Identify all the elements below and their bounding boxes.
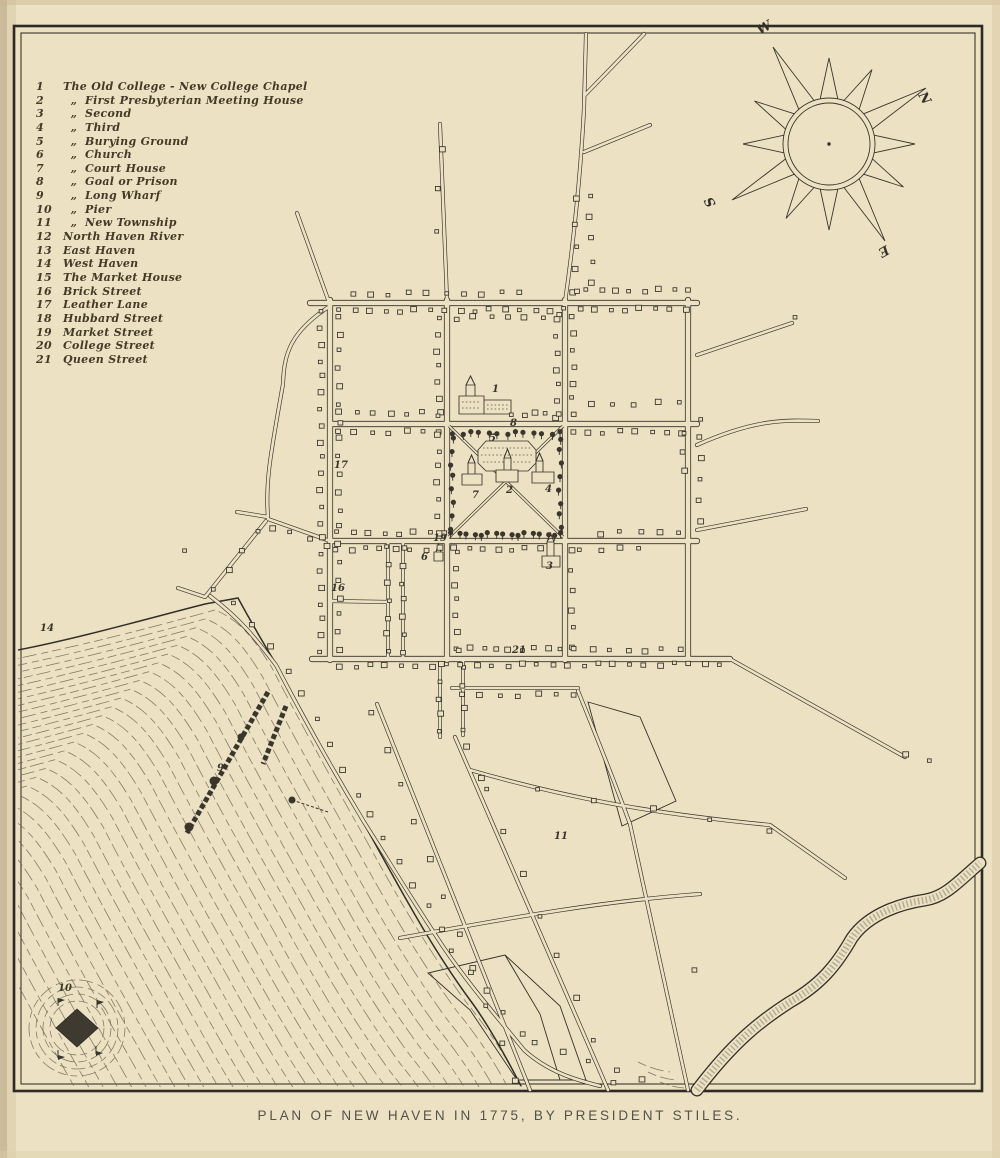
legend-item: 20College Street — [36, 339, 336, 353]
ditto-mark: „ — [63, 203, 85, 216]
page-edge-shadow — [0, 0, 1000, 5]
legend-item-number: 19 — [36, 326, 63, 339]
map-number-label: 6 — [421, 552, 428, 563]
legend: 1The Old College - New College Chapel2„F… — [36, 80, 336, 366]
legend-item-number: 5 — [36, 135, 63, 148]
legend-item: 7„Court House — [36, 162, 336, 176]
page-edge-shadow — [0, 1151, 1000, 1158]
legend-item-label: The Market House — [63, 271, 182, 284]
legend-item: 21Queen Street — [36, 353, 336, 367]
legend-item: 13East Haven — [36, 244, 336, 258]
legend-item-number: 11 — [36, 216, 63, 229]
legend-item-number: 7 — [36, 162, 63, 175]
legend-item-label: New Township — [85, 216, 177, 229]
ditto-mark: „ — [63, 162, 85, 175]
legend-item-number: 18 — [36, 312, 63, 325]
ditto-mark: „ — [63, 94, 85, 107]
map-number-label: 19 — [433, 533, 447, 544]
legend-item-number: 21 — [36, 353, 63, 366]
page-edge-shadow — [0, 0, 7, 1158]
legend-item-label: West Haven — [63, 257, 138, 270]
map-number-label: 7 — [472, 490, 479, 501]
map-number-label: 8 — [510, 418, 517, 429]
caption: PLAN OF NEW HAVEN IN 1775, BY PRESIDENT … — [0, 1108, 1000, 1123]
legend-item-number: 4 — [36, 121, 63, 134]
legend-item: 10„Pier — [36, 203, 336, 217]
legend-item: 6„Church — [36, 148, 336, 162]
map-number-label: 11 — [554, 831, 568, 842]
legend-item: 9„Long Wharf — [36, 189, 336, 203]
legend-item: 12North Haven River — [36, 230, 336, 244]
ditto-mark: „ — [63, 175, 85, 188]
legend-item-label: The Old College - New College Chapel — [63, 80, 308, 93]
scanned-page: N E S W 12345678910111416171921 1The Old… — [0, 0, 1000, 1158]
map-number-label: 21 — [511, 645, 526, 656]
legend-item: 19Market Street — [36, 326, 336, 340]
legend-item: 5„Burying Ground — [36, 135, 336, 149]
legend-item-label: Goal or Prison — [85, 175, 178, 188]
legend-item: 11„New Township — [36, 216, 336, 230]
legend-item: 18Hubbard Street — [36, 312, 336, 326]
legend-item-number: 15 — [36, 271, 63, 284]
legend-item-number: 14 — [36, 257, 63, 270]
map-number-label: 14 — [40, 623, 54, 634]
legend-item: 1The Old College - New College Chapel — [36, 80, 336, 94]
map-number-label: 10 — [58, 983, 72, 994]
ditto-mark: „ — [63, 135, 85, 148]
legend-item-number: 13 — [36, 244, 63, 257]
legend-item-number: 20 — [36, 339, 63, 352]
legend-item: 14West Haven — [36, 257, 336, 271]
legend-item-label: Third — [85, 121, 120, 134]
legend-item-label: First Presbyterian Meeting House — [85, 94, 304, 107]
legend-item-number: 8 — [36, 175, 63, 188]
legend-item: 4„Third — [36, 121, 336, 135]
map-number-label: 16 — [331, 583, 345, 594]
map-number-label: 17 — [334, 460, 348, 471]
ditto-mark: „ — [63, 107, 85, 120]
legend-item-label: Queen Street — [63, 353, 148, 366]
legend-item: 17Leather Lane — [36, 298, 336, 312]
legend-item-label: Market Street — [63, 326, 153, 339]
map-number-label: 1 — [492, 384, 499, 395]
legend-item: 8„Goal or Prison — [36, 175, 336, 189]
legend-item: 16Brick Street — [36, 285, 336, 299]
legend-item-number: 3 — [36, 107, 63, 120]
legend-item-label: Leather Lane — [63, 298, 148, 311]
legend-item-label: Brick Street — [63, 285, 142, 298]
legend-item-label: Second — [85, 107, 131, 120]
legend-item-number: 9 — [36, 189, 63, 202]
legend-item-label: Church — [85, 148, 132, 161]
legend-item-label: Burying Ground — [85, 135, 189, 148]
legend-item-label: Pier — [85, 203, 111, 216]
map-number-label: 5 — [489, 433, 496, 444]
legend-item-label: Long Wharf — [85, 189, 161, 202]
legend-item-number: 17 — [36, 298, 63, 311]
ditto-mark: „ — [63, 148, 85, 161]
map-number-label: 9 — [217, 763, 224, 774]
legend-item-number: 6 — [36, 148, 63, 161]
legend-item-label: Court House — [85, 162, 166, 175]
map-number-label: 2 — [505, 485, 513, 496]
legend-item-label: College Street — [63, 339, 155, 352]
legend-item-number: 2 — [36, 94, 63, 107]
legend-item-label: Hubbard Street — [63, 312, 163, 325]
legend-item-label: East Haven — [63, 244, 136, 257]
legend-item-number: 16 — [36, 285, 63, 298]
ditto-mark: „ — [63, 189, 85, 202]
map-number-label: 3 — [546, 561, 553, 572]
ditto-mark: „ — [63, 121, 85, 134]
legend-item-number: 1 — [36, 80, 63, 93]
legend-item-number: 12 — [36, 230, 63, 243]
legend-item: 3„Second — [36, 107, 336, 121]
page-edge-shadow — [992, 0, 1000, 1158]
map-number-label: 4 — [545, 484, 552, 495]
legend-item: 2„First Presbyterian Meeting House — [36, 94, 336, 108]
legend-item-label: North Haven River — [63, 230, 183, 243]
legend-item: 15The Market House — [36, 271, 336, 285]
legend-item-number: 10 — [36, 203, 63, 216]
ditto-mark: „ — [63, 216, 85, 229]
